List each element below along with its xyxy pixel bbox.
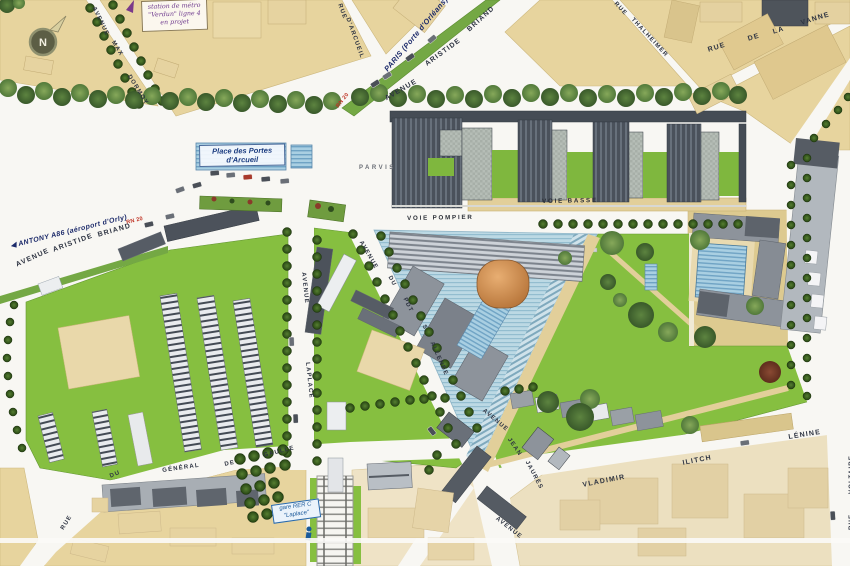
metro-project-note: station de métro "Verdun" ligne 4 en pro… <box>141 0 208 31</box>
compass-letter: N <box>39 37 47 49</box>
voie-basse-label: VOIE BASSE <box>542 198 598 205</box>
orange-dome <box>477 260 529 308</box>
parvis-label: PARVIS <box>359 165 396 171</box>
metro-project-note-text: station de métro "Verdun" ligne 4 en pro… <box>143 2 206 29</box>
pool-block <box>689 213 788 327</box>
place-name-text: Place des Portes d'Arcueil <box>200 146 284 165</box>
place-name-plate: Place des Portes d'Arcueil <box>199 143 285 166</box>
scan-edge-line <box>0 538 850 543</box>
map-canvas[interactable]: N station de métro "Verdun" ligne 4 en p… <box>0 0 850 566</box>
voie-pompier-label: VOIE POMPIER <box>407 215 474 222</box>
map-artwork: N <box>0 0 850 566</box>
